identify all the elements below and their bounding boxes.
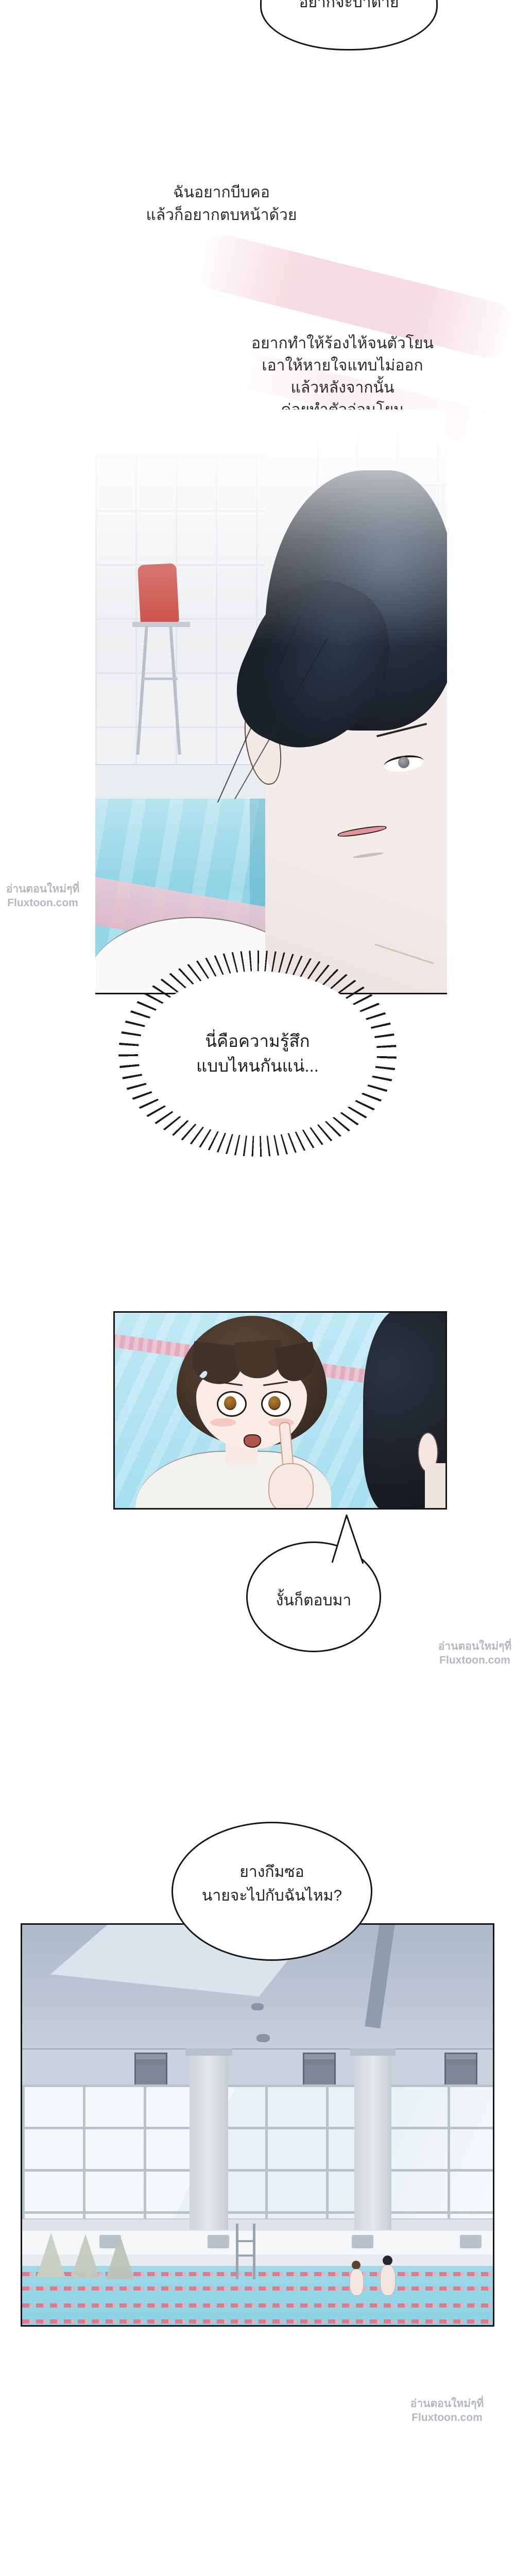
watermark-3: อ่านตอนใหม่ๆที่ Fluxtoon.com (408, 2397, 486, 2425)
wall-board-2 (208, 2235, 229, 2248)
top-speech-bubble-text: อยากจะบ้าตาย (262, 0, 436, 14)
column-right (354, 2048, 391, 2230)
pool-ladder-rail-right (253, 2224, 255, 2279)
watermark-2: อ่านตอนใหม่ๆที่ Fluxtoon.com (437, 1639, 513, 1667)
man-back-neck (425, 1463, 447, 1510)
watermark-1: อ่านตอนใหม่ๆที่ Fluxtoon.com (4, 882, 81, 910)
ask-line1: ยางกึมซอ (173, 1860, 371, 1884)
answer-bubble-text: งั้นก็ตอบมา (248, 1588, 380, 1613)
wall-board-4 (460, 2235, 482, 2248)
watermark-3-line2: Fluxtoon.com (408, 2411, 486, 2425)
swimmer-brown-head (352, 2261, 360, 2269)
panel-2 (113, 1311, 447, 1510)
pool-ladder-rail-left (236, 2224, 238, 2279)
watermark-2-line2: Fluxtoon.com (437, 1653, 513, 1667)
monologue-1-line1: ฉันอยากบีบคอ (124, 181, 319, 204)
swimmer-brown-body (350, 2269, 364, 2296)
top-speech-bubble: อยากจะบ้าตาย (260, 0, 438, 50)
monologue-1-line2: แล้วก็อยากตบหน้าด้วย (124, 204, 319, 227)
ceiling-light-1 (251, 2003, 264, 2010)
swimmer-black-body (380, 2265, 396, 2296)
boy-hand-fist (268, 1463, 314, 1510)
watermark-3-line1: อ่านตอนใหม่ๆที่ (408, 2397, 486, 2411)
ask-bubble: ยางกึมซอ นายจะไปกับฉันไหม? (171, 1822, 372, 1961)
boy-eye-right-iris (268, 1396, 281, 1410)
answer-bubble-tail (327, 1511, 368, 1569)
monologue-1: ฉันอยากบีบคอ แล้วก็อยากตบหน้าด้วย (124, 181, 319, 227)
lane-rope-row-4 (22, 2319, 494, 2324)
wall-board-3 (352, 2235, 373, 2248)
boy-blush-left (210, 1418, 236, 1427)
ask-line2: นายจะไปกับฉันไหม? (173, 1884, 371, 1908)
pool-ladder-rung-2 (237, 2255, 254, 2257)
column-right-cap (350, 2048, 396, 2056)
panel-1-haze (95, 410, 447, 647)
wall-vent-3 (444, 2053, 477, 2089)
pool-ladder-rung-1 (237, 2240, 254, 2242)
boy-eye-left-iris (224, 1396, 236, 1410)
watermark-1-line2: Fluxtoon.com (4, 896, 81, 910)
column-left-cap (185, 2048, 232, 2056)
lower-wall (22, 2231, 494, 2255)
swimmer-black-head (383, 2256, 392, 2265)
boy-mouth-open (244, 1434, 261, 1448)
monologue-2-line3: แล้วหลังจากนั้น (234, 377, 451, 399)
column-left (190, 2048, 228, 2230)
burst-bubble-text: นี่คือความรู้สึก แบบไหนกันแน่... (118, 1029, 397, 1078)
lane-rope-row-3 (22, 2303, 494, 2308)
watermark-2-line1: อ่านตอนใหม่ๆที่ (437, 1639, 513, 1653)
wall-vent-2 (303, 2053, 336, 2089)
ask-bubble-text: ยางกึมซอ นายจะไปกับฉันไหม? (173, 1860, 371, 1908)
monologue-2-line1: อยากทำให้ร้องไห้จนตัวโยน (234, 332, 451, 354)
monologue-2-line2: เอาให้หายใจแทบไม่ออก (234, 354, 451, 377)
upper-wall-band (22, 2048, 494, 2086)
webtoon-page: อยากจะบ้าตาย ฉันอยากบีบคอ แล้วก็อยากตบหน… (0, 0, 515, 2576)
burst-line2: แบบไหนกันแน่... (118, 1054, 397, 1078)
man-eye-iris (398, 757, 409, 768)
window-wall (22, 2084, 494, 2218)
wall-vent-1 (134, 2053, 167, 2089)
panel-3 (21, 1923, 494, 2327)
lane-rope-row-2 (22, 2286, 494, 2291)
panel-1 (95, 410, 447, 994)
watermark-1-line1: อ่านตอนใหม่ๆที่ (4, 882, 81, 896)
burst-line1: นี่คือความรู้สึก (118, 1029, 397, 1054)
lifeguard-chair-rung (143, 677, 178, 680)
burst-bubble: นี่คือความรู้สึก แบบไหนกันแน่... (118, 951, 397, 1157)
ceiling-light-2 (256, 2034, 270, 2042)
window-sill (22, 2218, 494, 2232)
